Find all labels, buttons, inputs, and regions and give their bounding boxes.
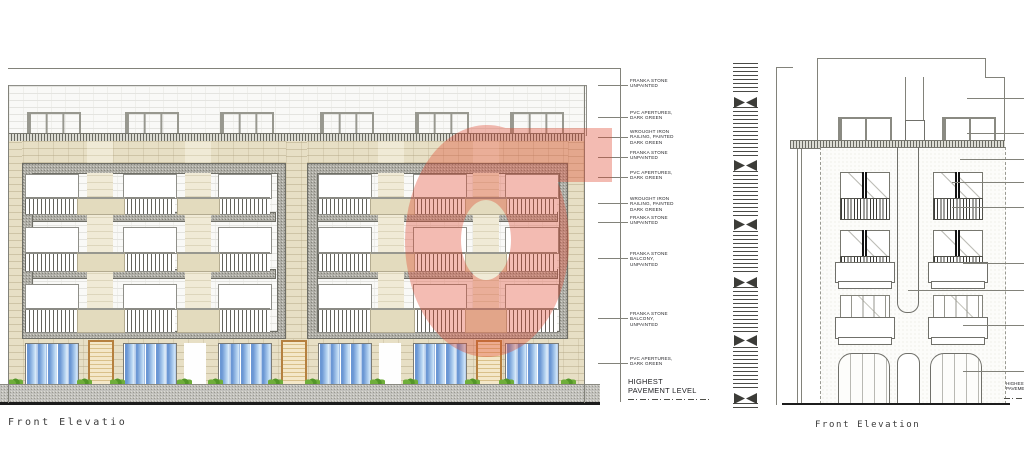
leader-line bbox=[598, 85, 628, 86]
central-recess bbox=[897, 147, 919, 313]
roof-parapet-wall bbox=[8, 85, 587, 136]
balcony-railing bbox=[505, 197, 557, 215]
side-wall-line bbox=[801, 140, 802, 403]
annotation-label: PVC APERTURES, DARK GREEN bbox=[630, 170, 682, 181]
balcony-stone-panel bbox=[177, 197, 220, 215]
annotation-label: WROUGHT IRON RAILING, PAINTED DARK GREEN bbox=[630, 196, 682, 212]
apartment-window bbox=[505, 227, 559, 254]
pavement-level-line bbox=[628, 399, 712, 400]
balcony-stone-panel bbox=[465, 252, 507, 272]
building-edge bbox=[8, 85, 9, 403]
leader-line bbox=[963, 325, 1024, 326]
apartment-window bbox=[25, 174, 79, 199]
balcony-stone-panel bbox=[370, 252, 415, 272]
side-wall-line bbox=[797, 140, 798, 403]
balcony-stone-panel bbox=[177, 308, 220, 333]
apartment-window bbox=[25, 227, 79, 254]
section-marker bbox=[733, 95, 758, 106]
leader-line bbox=[952, 207, 1024, 208]
section-marker bbox=[733, 391, 758, 402]
garage-door bbox=[930, 353, 982, 405]
balcony-railing bbox=[318, 197, 370, 215]
shopfront-glazing bbox=[123, 343, 177, 386]
balcony-railing bbox=[218, 197, 270, 215]
pavement-level-label: HIGHEST PAVEMENT LEVEL bbox=[628, 378, 698, 396]
annotation-label: FRANKA STONE UNPAINTED bbox=[630, 215, 682, 226]
penthouse-outline bbox=[1004, 77, 1005, 140]
annotation-label: PVC APERTURES, DARK GREEN bbox=[630, 356, 682, 367]
balcony-railing bbox=[318, 252, 370, 272]
apartment-window bbox=[123, 284, 177, 310]
balcony-railing bbox=[218, 308, 270, 333]
apartment-window bbox=[413, 174, 467, 199]
balcony-stone-panel bbox=[370, 197, 415, 215]
balcony-stone-panel bbox=[465, 197, 507, 215]
elevation-drawing-sheet: FRANKA STONE UNPAINTED PVC APERTURES, DA… bbox=[0, 0, 1024, 469]
apartment-window bbox=[318, 284, 372, 310]
leader-line bbox=[598, 117, 628, 118]
balcony-parapet bbox=[928, 317, 988, 339]
balcony-railing bbox=[505, 308, 557, 333]
right-elevation-title: Front Elevation bbox=[815, 420, 920, 430]
window-four-pane bbox=[840, 295, 890, 319]
boundary-tick bbox=[776, 67, 793, 68]
leader-line bbox=[598, 318, 628, 319]
apartment-window bbox=[123, 227, 177, 254]
apartment-window bbox=[218, 284, 272, 310]
window-railing bbox=[840, 198, 890, 220]
penthouse-outline bbox=[817, 58, 818, 140]
leader-line bbox=[967, 98, 1024, 99]
apartment-window bbox=[505, 284, 559, 310]
penthouse-outline bbox=[817, 58, 985, 59]
pilaster-strip bbox=[473, 141, 499, 163]
apartment-window bbox=[413, 284, 467, 310]
balcony-base bbox=[838, 281, 892, 289]
penthouse-outline bbox=[985, 58, 986, 77]
section-marker bbox=[733, 217, 758, 228]
left-elevation-title: Front Elevatio bbox=[8, 417, 127, 428]
leader-line bbox=[967, 133, 1024, 134]
balcony-base bbox=[838, 337, 892, 345]
balcony-stone-panel bbox=[77, 252, 125, 272]
leader-line bbox=[598, 203, 628, 204]
balcony-parapet bbox=[835, 317, 895, 339]
leader-line bbox=[598, 137, 628, 138]
boundary-line bbox=[776, 67, 777, 405]
pilaster-strip bbox=[87, 141, 113, 163]
shopfront-glazing bbox=[218, 343, 272, 386]
pavement-level-label-right: HIGHEST PAVEMENT LEVEL bbox=[1006, 381, 1024, 392]
balcony-stone-panel bbox=[465, 308, 507, 333]
apartment-window bbox=[218, 174, 272, 199]
party-wall-hatch bbox=[733, 62, 758, 408]
balcony-railing bbox=[318, 308, 370, 333]
shopfront-glazing bbox=[413, 343, 467, 386]
section-marker bbox=[733, 333, 758, 344]
leader-line bbox=[952, 182, 1024, 183]
leader-line bbox=[963, 371, 1024, 372]
balcony-railing bbox=[413, 308, 465, 333]
balcony-parapet bbox=[928, 262, 988, 283]
annotation-label: FRANKA STONE BALCONY, UNPAINTED bbox=[630, 311, 682, 327]
annotation-label: PVC APERTURES, DARK GREEN bbox=[630, 110, 682, 121]
leader-line bbox=[598, 177, 628, 178]
leader-line bbox=[960, 159, 1024, 160]
leader-line bbox=[598, 222, 628, 223]
balcony-parapet bbox=[835, 262, 895, 283]
window-four-pane bbox=[933, 295, 983, 319]
window-mullion bbox=[955, 230, 960, 256]
garage-door bbox=[838, 353, 890, 405]
arched-entrance-door bbox=[897, 353, 920, 405]
leader-line bbox=[598, 363, 628, 364]
window-mullion bbox=[955, 172, 960, 198]
balcony-stone-panel bbox=[77, 308, 125, 333]
shopfront-glazing bbox=[318, 343, 372, 386]
window-mullion bbox=[862, 172, 867, 198]
balcony-railing bbox=[413, 252, 465, 272]
building-edge bbox=[584, 85, 585, 403]
balcony-stone-panel bbox=[77, 197, 125, 215]
pavement-level-line bbox=[1004, 398, 1024, 399]
penthouse-outline bbox=[985, 77, 1005, 78]
apartment-window bbox=[218, 227, 272, 254]
pavement bbox=[0, 384, 600, 404]
balcony-railing bbox=[25, 252, 77, 272]
annotation-label: WROUGHT IRON RAILING, PAINTED DARK GREEN bbox=[630, 129, 682, 145]
apartment-window bbox=[123, 174, 177, 199]
balcony-stone-panel bbox=[370, 308, 415, 333]
balcony-railing bbox=[218, 252, 270, 272]
stone-pier-left bbox=[8, 141, 22, 339]
apartment-window bbox=[25, 284, 79, 310]
apartment-window bbox=[413, 227, 467, 254]
shopfront-glazing bbox=[25, 343, 79, 386]
dimension-line bbox=[620, 68, 621, 402]
balcony-stone-panel bbox=[177, 252, 220, 272]
apartment-window bbox=[318, 227, 372, 254]
ground-line bbox=[782, 403, 1010, 405]
section-marker bbox=[733, 275, 758, 286]
leader-line bbox=[598, 157, 628, 158]
leader-line bbox=[908, 290, 1024, 291]
balcony-railing bbox=[505, 252, 557, 272]
window-railing bbox=[933, 198, 983, 220]
stone-pier-middle bbox=[286, 141, 307, 339]
section-marker bbox=[733, 158, 758, 169]
pilaster-strip bbox=[378, 141, 404, 163]
stone-pier-right bbox=[568, 141, 585, 339]
balcony-base bbox=[931, 281, 985, 289]
balcony-base bbox=[931, 337, 985, 345]
apartment-window bbox=[318, 174, 372, 199]
annotation-label: FRANKA STONE BALCONY, UNPAINTED bbox=[630, 251, 682, 267]
leader-line bbox=[598, 258, 628, 259]
pilaster-strip bbox=[185, 141, 211, 163]
balcony-railing bbox=[413, 197, 465, 215]
window-mullion bbox=[862, 230, 867, 256]
annotation-label: FRANKA STONE UNPAINTED bbox=[630, 150, 682, 161]
ground-line bbox=[0, 402, 600, 405]
shaft-door bbox=[905, 120, 925, 142]
balcony-railing bbox=[25, 197, 77, 215]
balcony-railing bbox=[25, 308, 77, 333]
leader-line bbox=[963, 263, 1024, 264]
balcony-railing bbox=[123, 308, 175, 333]
extension-line bbox=[8, 68, 620, 69]
balcony-railing bbox=[123, 197, 175, 215]
balcony-railing bbox=[123, 252, 175, 272]
apartment-window bbox=[505, 174, 559, 199]
annotation-label: FRANKA STONE UNPAINTED bbox=[630, 78, 682, 89]
